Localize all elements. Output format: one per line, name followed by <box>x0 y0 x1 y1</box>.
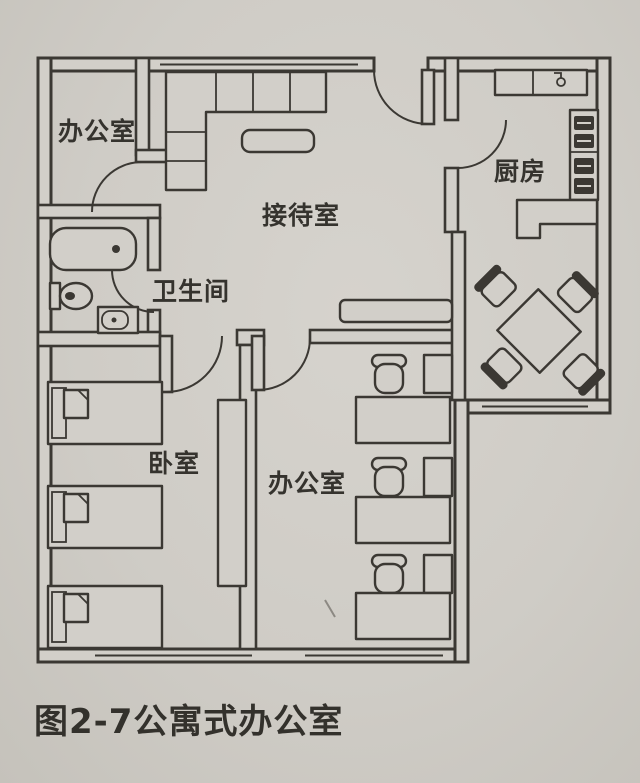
toilet-drain <box>65 292 75 300</box>
side-cabinet <box>424 555 452 593</box>
figure-caption: 图2-7公寓式办公室 <box>34 702 343 742</box>
office2-door-arc <box>258 338 310 390</box>
room-label-kitchen: 厨房 <box>494 157 546 186</box>
sideboard <box>340 300 452 322</box>
wall-bathroom-right-upper <box>148 218 160 270</box>
scanned-book-page: 办公室 接待室 厨房 卫生间 卧室 办公室 图2-7公寓式办公室 <box>0 0 640 783</box>
pillow <box>64 390 88 418</box>
room-label-office-bottom: 办公室 <box>268 469 346 498</box>
office-chair <box>375 364 403 393</box>
desk <box>356 593 450 639</box>
workstation <box>356 458 452 543</box>
desk <box>356 497 450 543</box>
bed <box>48 486 162 548</box>
toilet-bowl <box>60 283 92 309</box>
workstation <box>356 555 452 639</box>
wall-kitchen-left-mid <box>445 168 458 232</box>
bed <box>48 586 162 648</box>
entrance-door-arc <box>374 70 428 124</box>
office-chair <box>375 467 403 496</box>
bathtub-drain <box>112 245 120 253</box>
wall-office1-right <box>136 58 149 155</box>
room-label-reception: 接待室 <box>262 201 340 230</box>
workstation <box>356 355 452 443</box>
scan-artifact <box>325 600 335 617</box>
kitchen-counter-top <box>495 70 587 95</box>
office2-door-leaf <box>252 336 264 390</box>
sink-drain <box>112 318 117 323</box>
outer-walls <box>38 58 610 662</box>
wall-office-right <box>455 400 468 662</box>
wall-kitchen-left-upper <box>445 58 458 120</box>
floor-plan-figure: 办公室 接待室 厨房 卫生间 卧室 办公室 图2-7公寓式办公室 <box>0 0 640 783</box>
kitchen-counter-l <box>517 200 597 238</box>
bathroom-door-arc <box>112 270 154 312</box>
room-label-office-top-left: 办公室 <box>58 117 136 146</box>
pillow <box>64 594 88 622</box>
bed <box>48 382 162 444</box>
wall-kitchen-left-lower <box>452 232 465 400</box>
wall-office1-bottom <box>38 205 160 218</box>
side-cabinet <box>424 458 452 496</box>
entrance-door-leaf <box>422 70 434 124</box>
office-chair <box>375 564 403 593</box>
room-label-bathroom: 卫生间 <box>152 277 230 306</box>
room-label-bedroom: 卧室 <box>148 449 200 478</box>
wall-left <box>38 58 51 662</box>
pillow <box>64 494 88 522</box>
bedroom-furniture <box>48 382 246 648</box>
bedroom-door-arc <box>166 336 222 392</box>
bathtub <box>50 228 136 270</box>
desk <box>356 397 450 443</box>
bathroom-fixtures <box>50 228 138 333</box>
coffee-table <box>242 130 314 152</box>
side-cabinet <box>424 355 452 393</box>
toilet-tank <box>50 283 60 309</box>
wardrobe <box>218 400 246 586</box>
wall-reception-bottom <box>310 330 455 343</box>
